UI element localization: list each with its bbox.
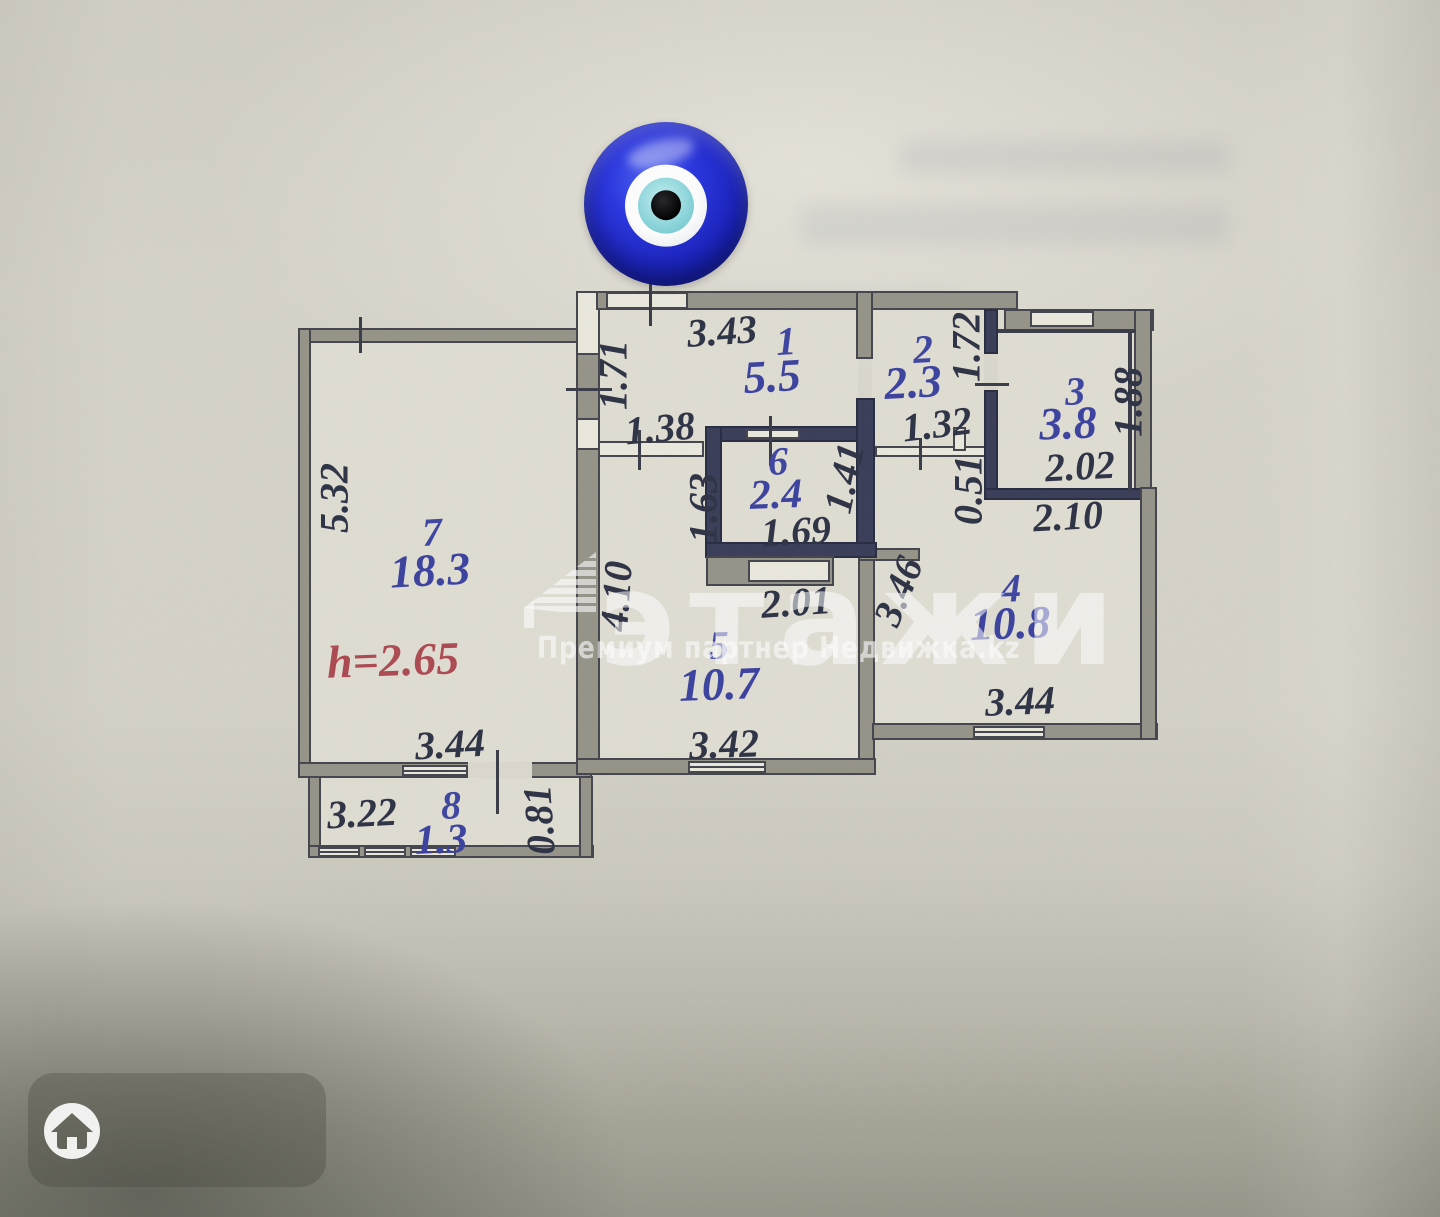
ink-bleed: [800, 205, 1230, 245]
wall: [298, 328, 311, 776]
window: [364, 847, 406, 857]
dim-0-51: 0.51: [945, 455, 992, 525]
dimension-tick: [496, 750, 499, 814]
house-icon: [44, 1103, 100, 1159]
dimension-tick: [649, 278, 652, 326]
dim-3-42: 3.42: [688, 719, 760, 768]
window: [318, 847, 360, 857]
room-7-area: 18.3: [388, 541, 471, 598]
watermark-brand-text: этажи: [598, 543, 1129, 695]
room-8-area: 1.3: [414, 815, 468, 865]
floorplan-photo: 3.43 1.71 1.38 1.72 1.32 1.88 2.02 2.10 …: [0, 0, 1440, 1217]
dim-3-43: 3.43: [685, 305, 758, 357]
dim-1-72: 1.72: [943, 312, 990, 382]
dim-2-10: 2.10: [1032, 491, 1104, 542]
dimension-tick: [359, 317, 362, 353]
wall: [298, 328, 580, 343]
dim-0-81: 0.81: [513, 783, 565, 856]
dim-5-32: 5.32: [311, 463, 358, 533]
dim-1-63: 1.63: [680, 473, 727, 543]
door-opening: [1030, 311, 1094, 327]
nedvizhka-badge: NEDVIZHKA.KZ: [28, 1073, 326, 1187]
dim-1-38: 1.38: [623, 402, 697, 455]
etazhi-flag-icon: [524, 550, 598, 628]
evil-eye-amulet: [584, 122, 748, 286]
room-6-area: 2.4: [749, 470, 803, 520]
dim-1-71: 1.71: [590, 340, 637, 410]
dim-3-44-room7: 3.44: [414, 719, 486, 770]
wall: [1140, 487, 1157, 740]
window: [973, 726, 1045, 738]
eye-pupil: [651, 190, 681, 220]
dim-1-88: 1.88: [1105, 367, 1152, 437]
room-2-area: 2.3: [883, 354, 943, 410]
ink-bleed: [900, 140, 1230, 174]
wall: [579, 776, 593, 858]
dimension-tick: [975, 383, 1009, 386]
door-opening: [606, 292, 688, 309]
ceiling-height-label: h=2.65: [326, 631, 460, 689]
wall: [856, 291, 873, 359]
dim-3-22: 3.22: [326, 788, 398, 839]
room-1-area: 5.5: [742, 348, 802, 404]
wall: [998, 329, 1136, 333]
room-3-area: 3.8: [1038, 396, 1097, 451]
watermark-subtitle: Премиум партнер Недвижка.kz: [537, 631, 1021, 666]
wall: [576, 418, 600, 450]
